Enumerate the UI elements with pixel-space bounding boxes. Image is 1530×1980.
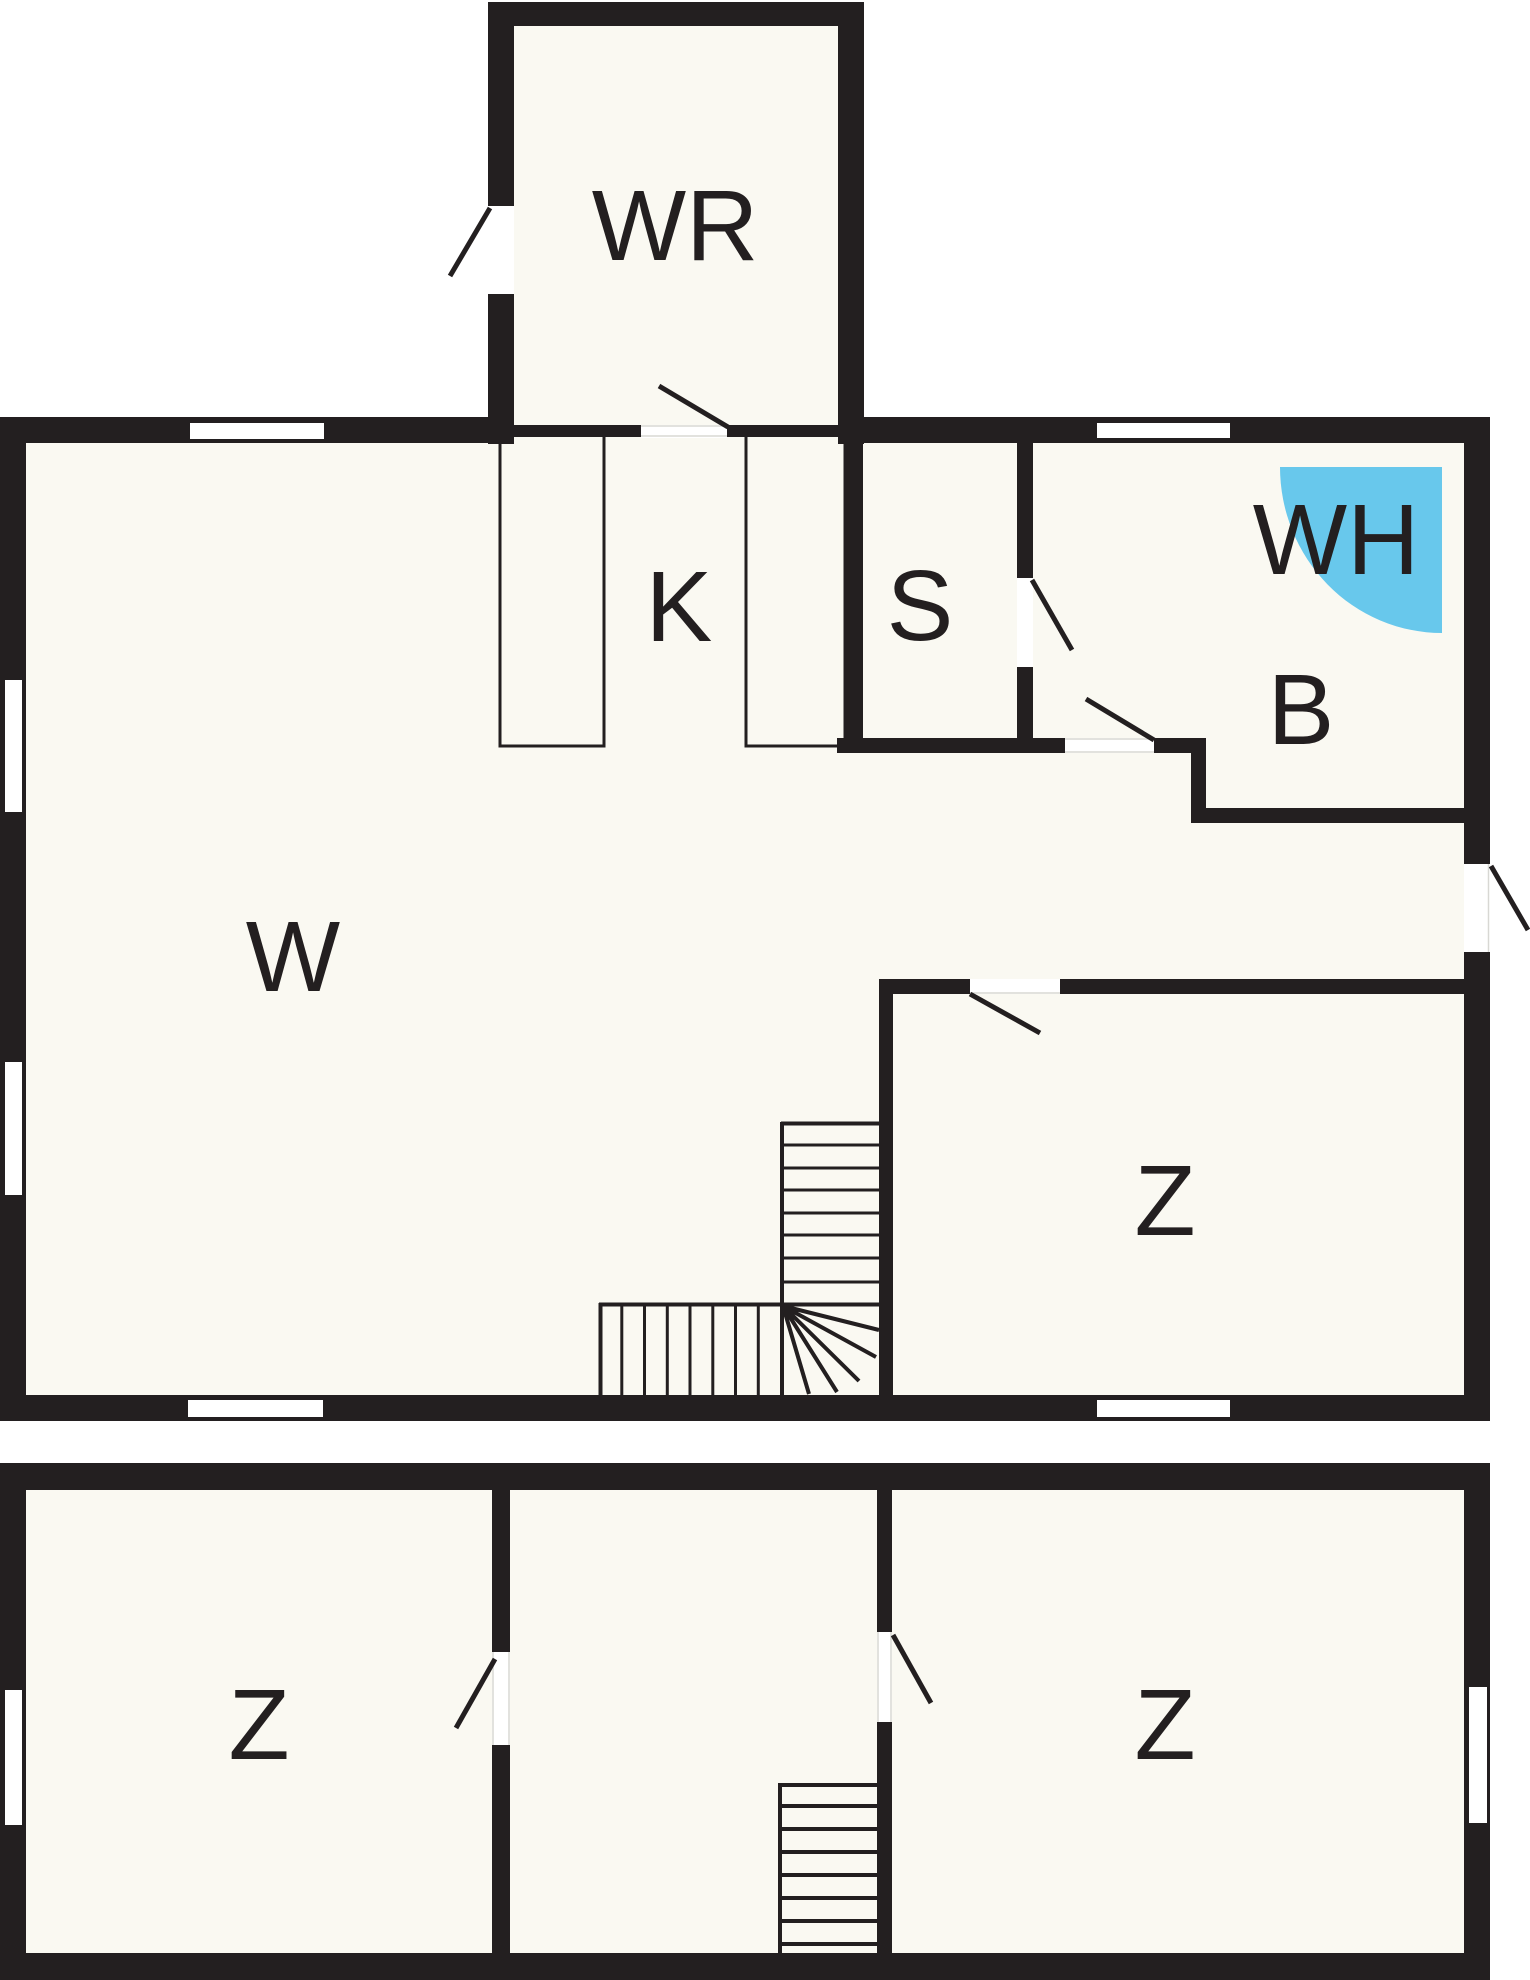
svg-text:K: K: [646, 551, 713, 663]
svg-text:Z: Z: [1134, 1669, 1195, 1781]
svg-text:WH: WH: [1253, 484, 1420, 596]
svg-text:WR: WR: [592, 170, 759, 282]
svg-text:W: W: [246, 901, 341, 1013]
svg-text:Z: Z: [228, 1669, 289, 1781]
svg-text:B: B: [1268, 654, 1335, 766]
svg-text:Z: Z: [1134, 1145, 1195, 1257]
svg-text:S: S: [887, 550, 954, 662]
